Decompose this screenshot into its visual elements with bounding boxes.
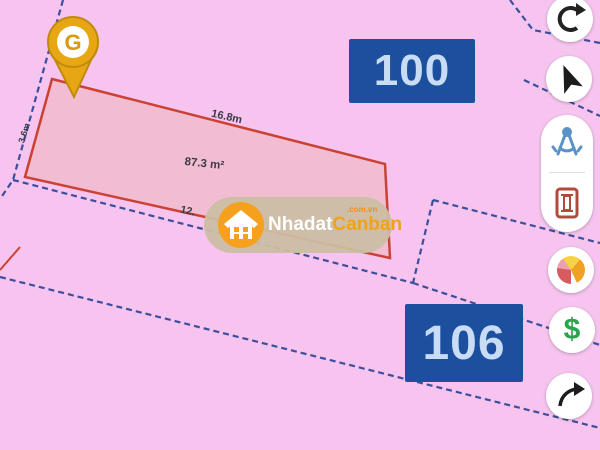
price-icon: $ — [564, 313, 581, 347]
boundary-line — [413, 200, 433, 283]
navigation-icon — [547, 57, 591, 101]
watermark-house-badge — [218, 202, 264, 248]
toolbar-divider — [549, 172, 585, 173]
parcel-badge-100[interactable]: 100 — [349, 39, 475, 103]
brand-primary: Nhadat — [268, 214, 332, 235]
measure-button[interactable] — [545, 121, 589, 165]
measure-compass-icon — [545, 121, 589, 165]
planning-button[interactable] — [545, 181, 589, 225]
planning-icon — [545, 181, 589, 225]
rotate-icon — [548, 0, 592, 41]
pin-logo-letter: G — [64, 30, 81, 55]
bottom-edge-measurement: 12. — [179, 204, 196, 219]
watermark-brand: NhadatCanban — [268, 214, 402, 236]
left-edge-measurement: 3.6m — [16, 122, 32, 145]
share-button[interactable] — [546, 373, 592, 419]
house-icon — [218, 202, 264, 248]
watermark-domain-suffix: .com.vn — [347, 205, 377, 214]
parcel-edge-fragment — [0, 247, 20, 270]
map-tools-group — [541, 115, 593, 232]
rotate-button[interactable] — [547, 0, 593, 42]
locate-button[interactable] — [546, 56, 592, 102]
watermark: NhadatCanban .com.vn — [204, 197, 392, 253]
price-button[interactable]: $ — [549, 307, 595, 353]
map-canvas[interactable]: 16.8m 87.3 m² 12. 3.6m G 100 106 N — [0, 0, 600, 450]
legend-pie-icon — [557, 256, 585, 284]
legend-button[interactable] — [548, 247, 594, 293]
brand-secondary: Canban — [332, 214, 402, 235]
parcel-badge-106[interactable]: 106 — [405, 304, 523, 382]
share-icon — [547, 374, 591, 418]
